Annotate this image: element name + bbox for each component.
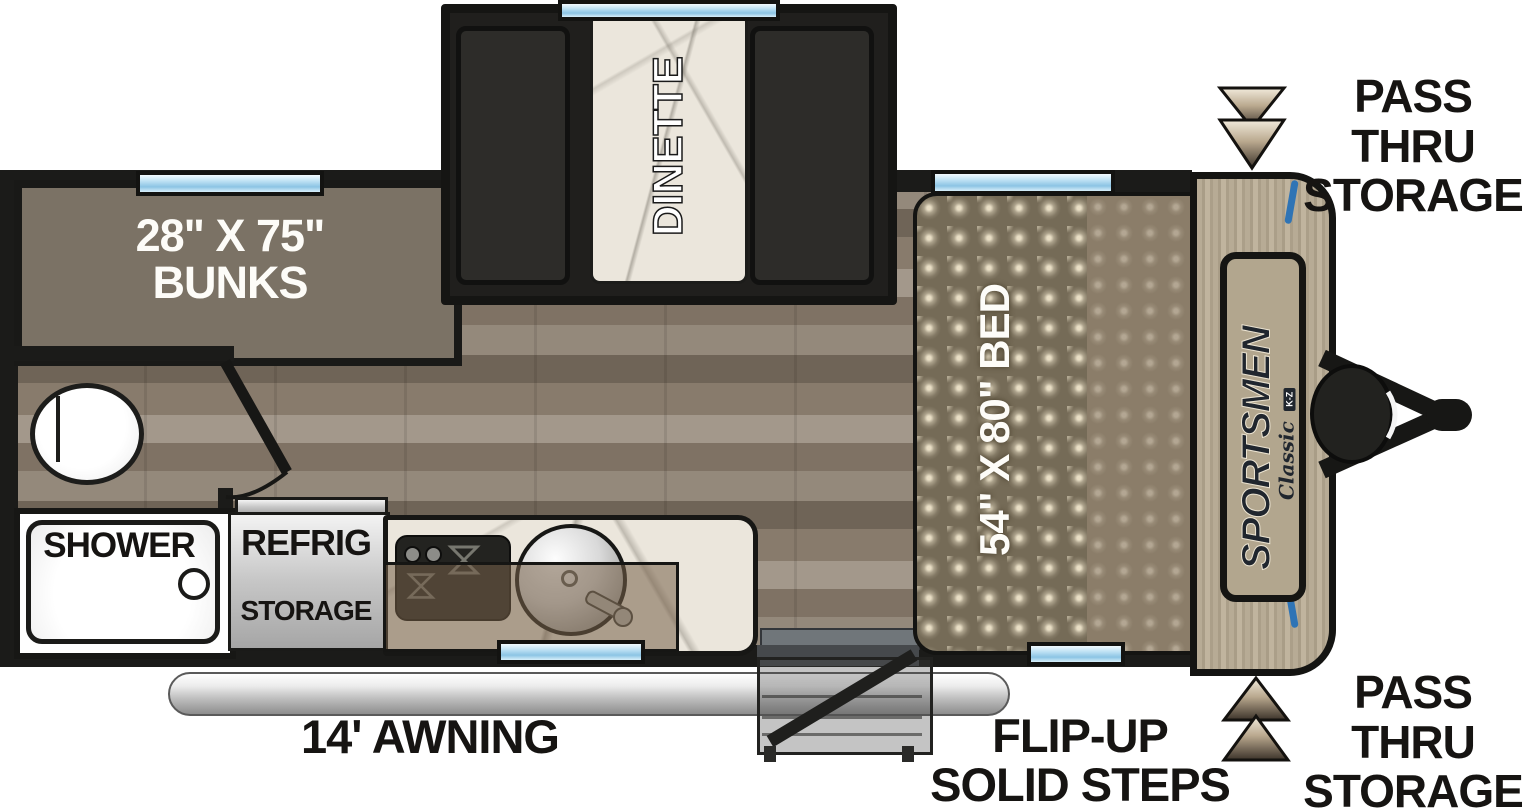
pass-thru-top-line1: PASS THRU (1290, 72, 1536, 171)
arrow-down-icon (1216, 84, 1288, 172)
dinette-window (558, 0, 780, 21)
cooktop-knob (404, 546, 421, 563)
arrow-up-icon (1220, 674, 1292, 764)
pass-thru-bottom-line1: PASS THRU (1290, 668, 1536, 767)
bunks-text: BUNKS (30, 259, 430, 306)
pass-thru-top-line2: STORAGE (1290, 171, 1536, 221)
counter-extension-overlay (383, 562, 679, 652)
pass-thru-storage-label-bottom: PASS THRU STORAGE (1290, 668, 1536, 811)
dinette-bench-left (456, 26, 570, 285)
pass-thru-storage-label-top: PASS THRU STORAGE (1290, 72, 1536, 221)
refrig-storage-label: STORAGE (230, 596, 382, 625)
brand-logo: SPORTSMEN Classic K-Z (1235, 270, 1280, 570)
bed-blanket (1087, 192, 1194, 655)
pass-thru-bottom-line2: STORAGE (1290, 767, 1536, 811)
bed-bottom-window (1027, 642, 1125, 666)
toilet-tank-line (56, 396, 60, 462)
dinette-bench-right (750, 26, 874, 285)
bathroom-door (200, 340, 330, 520)
floorplan-canvas: 28" X 75" BUNKS SHOWER REFRIG STORAGE 54… (0, 0, 1536, 811)
bunks-label: 28" X 75" BUNKS (30, 212, 430, 307)
bed-top-window (931, 170, 1115, 195)
cooktop-knob (425, 546, 442, 563)
steps-foot (764, 746, 776, 762)
dinette-label: DINETTE (644, 56, 692, 236)
toilet (30, 383, 144, 485)
bunks-window (136, 171, 324, 196)
refrig-label: REFRIG (230, 524, 382, 562)
awning-label: 14' AWNING (240, 712, 620, 761)
shower-label: SHOWER (24, 528, 214, 565)
bunks-size-text: 28" X 75" (30, 212, 430, 259)
brand-name: SPORTSMEN (1235, 326, 1279, 570)
kitchen-window (497, 640, 645, 664)
brand-maker-badge: K-Z (1283, 388, 1295, 411)
brand-series: Classic (1275, 421, 1299, 500)
steps-label-line2: SOLID STEPS (880, 761, 1280, 810)
hitch-tongue (1310, 330, 1485, 500)
bed-label: 54" X 80" BED (971, 284, 1019, 556)
shower-drain (178, 568, 210, 600)
